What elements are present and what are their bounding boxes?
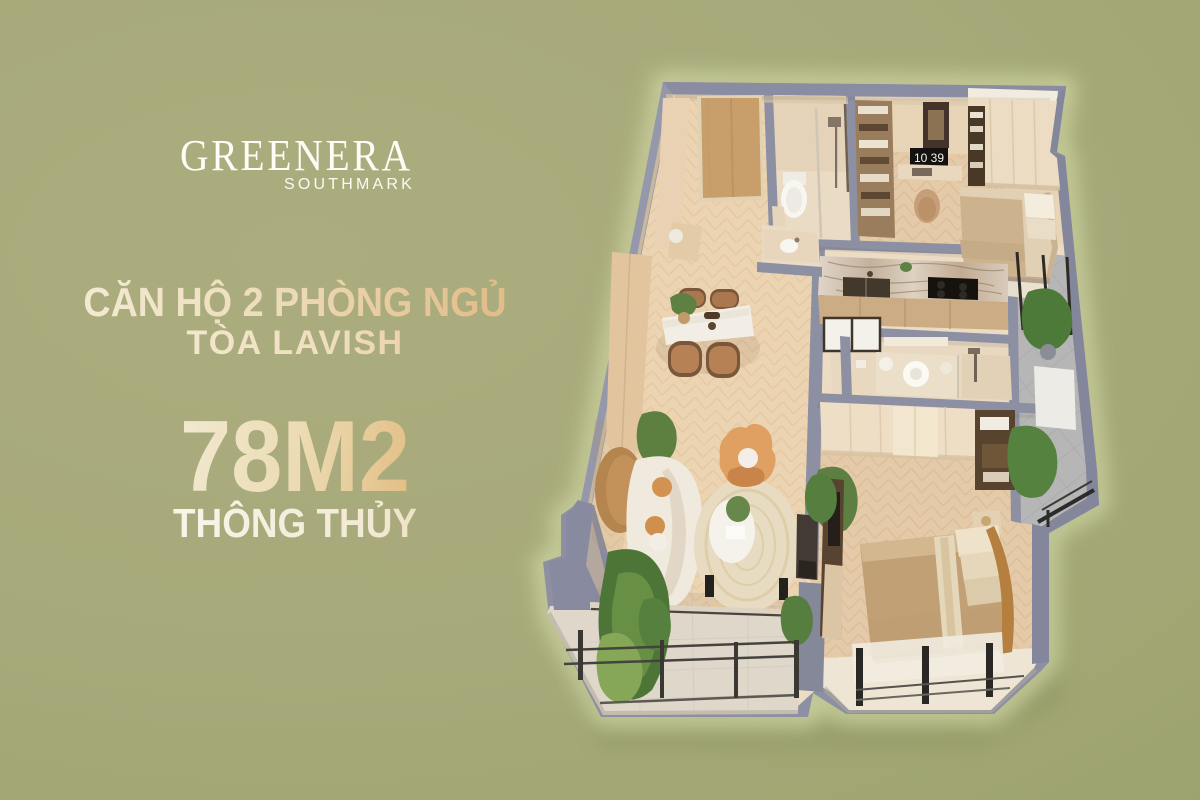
svg-text:10 39: 10 39 [914,151,944,165]
